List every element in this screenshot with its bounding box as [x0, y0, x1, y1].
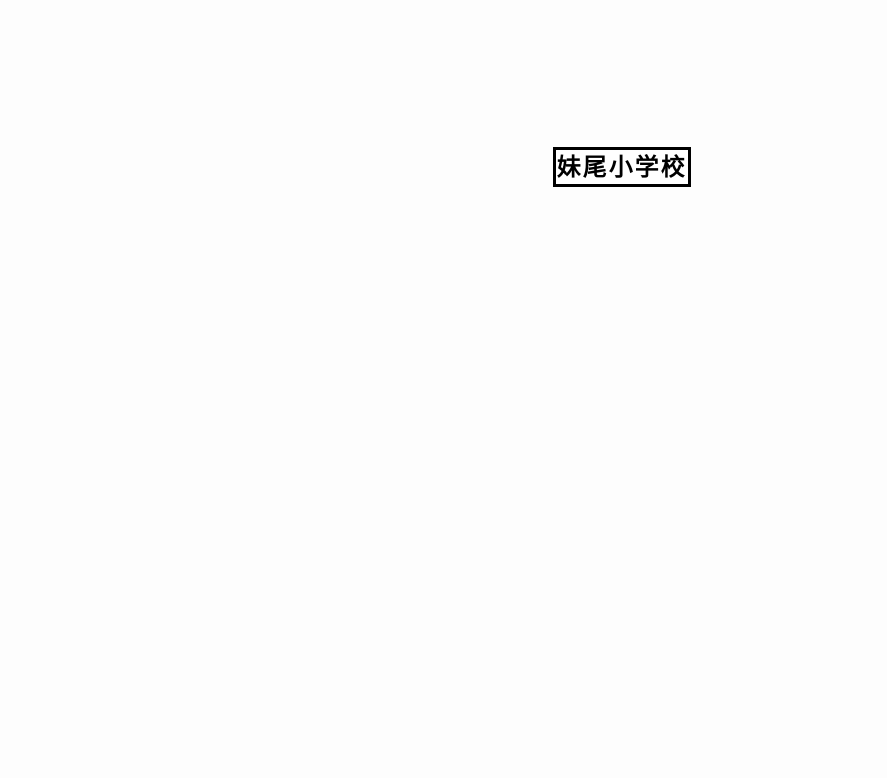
map-canvas [0, 0, 887, 778]
school-name-boxed-label: 妹尾小学校 [553, 147, 691, 187]
residential-map: 妹尾小学校 [0, 0, 887, 778]
